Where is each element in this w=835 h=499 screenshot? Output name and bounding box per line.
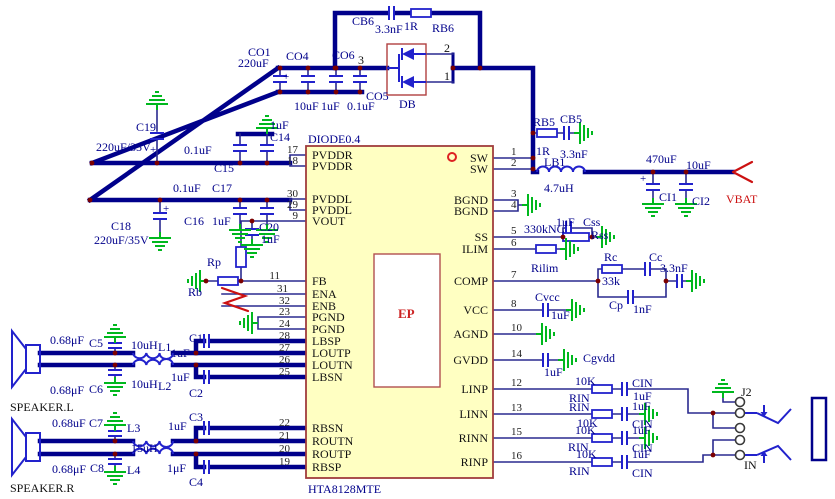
label-rb-ref: Rb xyxy=(188,285,202,299)
label-c18-val: 220uF/35V xyxy=(94,233,149,247)
label-rss-ref: Rss xyxy=(591,228,609,242)
svg-text:31: 31 xyxy=(277,283,288,295)
label-rin13-ref: RIN xyxy=(569,400,590,414)
label-j2-ref: J2 xyxy=(741,385,752,399)
ground-icon xyxy=(536,323,554,345)
label-c3-val: 1uF xyxy=(168,419,187,433)
label-c19-plus: + xyxy=(150,144,156,156)
svg-text:RINN: RINN xyxy=(459,431,489,445)
svg-text:18: 18 xyxy=(287,155,299,167)
ground-icon xyxy=(522,194,540,216)
label-l34-val: 15uH xyxy=(131,441,158,455)
label-c4-val: 1μF xyxy=(167,461,186,475)
audio-jack-j2 xyxy=(736,398,827,464)
svg-text:14: 14 xyxy=(511,348,523,360)
svg-text:15: 15 xyxy=(511,426,523,438)
svg-text:ROUTP: ROUTP xyxy=(312,447,352,461)
label-l4-ref: L4 xyxy=(127,463,140,477)
ground-icon xyxy=(149,232,171,250)
label-rc-val: 33k xyxy=(602,274,620,288)
label-c2-val: 1uF xyxy=(171,370,190,384)
label-rb6-ref: RB6 xyxy=(432,21,454,35)
label-c17-val: 1uF xyxy=(212,214,231,228)
ic-part-number: HTA8128MTE xyxy=(308,482,381,496)
label-cin15-val: 1uF xyxy=(632,423,651,437)
label-c16-ref: C16 xyxy=(184,214,204,228)
svg-text:10: 10 xyxy=(511,322,523,334)
svg-text:SW: SW xyxy=(470,162,489,176)
label-c8-ref: C8 xyxy=(90,461,104,475)
label-l2-ref: L2 xyxy=(158,379,171,393)
label-lb1-ref: LB1 xyxy=(544,155,565,169)
svg-text:20: 20 xyxy=(279,443,291,455)
label-c4-ref: C4 xyxy=(189,475,203,489)
ground-icon xyxy=(229,224,251,242)
label-node3: 3 xyxy=(358,53,364,67)
label-c16-val: 0.1uF xyxy=(173,181,201,195)
label-cp-ref: Cp xyxy=(609,298,623,312)
ground-icon xyxy=(104,466,126,484)
label-cin16-ref: CIN xyxy=(632,466,653,480)
label-cin13-val: 1uF xyxy=(632,399,651,413)
svg-text:16: 16 xyxy=(511,450,523,462)
label-rc-ref: Rc xyxy=(604,250,617,264)
svg-text:9: 9 xyxy=(293,210,299,222)
label-ci1-plus: + xyxy=(640,173,646,185)
svg-text:6: 6 xyxy=(511,237,517,249)
label-db-pin2: 2 xyxy=(444,41,450,55)
svg-text:RBSP: RBSP xyxy=(312,460,342,474)
label-c1-ref: C1 xyxy=(189,331,203,345)
label-c19-val: 220uF/35V xyxy=(96,140,151,154)
svg-text:LBSN: LBSN xyxy=(312,370,343,384)
label-c6-ref: C6 xyxy=(89,382,103,396)
label-cin12-ref: CIN xyxy=(632,376,653,390)
label-c6-val: 0.68μF xyxy=(50,383,84,397)
svg-text:ROUTN: ROUTN xyxy=(312,434,354,448)
label-db-ref: DB xyxy=(399,97,416,111)
label-vbat: VBAT xyxy=(726,192,758,206)
svg-text:28: 28 xyxy=(279,330,291,342)
label-c17-ref: C17 xyxy=(212,181,232,195)
label-comp-cap-val: 3.3nF xyxy=(660,261,688,275)
label-rin16-val: 10K xyxy=(576,447,597,461)
label-cp-val: 1nF xyxy=(633,302,652,316)
label-css-ref: Css xyxy=(583,215,601,229)
svg-text:13: 13 xyxy=(511,402,523,414)
label-c18-plus: + xyxy=(163,203,169,215)
label-cvcc-ref: Cvcc xyxy=(535,290,560,304)
svg-text:ILIM: ILIM xyxy=(462,242,488,256)
label-c5-ref: C5 xyxy=(89,336,103,350)
ground-icon xyxy=(104,325,126,343)
svg-text:27: 27 xyxy=(279,342,291,354)
ground-icon xyxy=(104,413,126,431)
ground-icon xyxy=(686,270,704,292)
label-in: IN xyxy=(744,458,757,472)
label-c2-ref: C2 xyxy=(189,386,203,400)
label-c19-ref: C19 xyxy=(136,120,156,134)
svg-text:12: 12 xyxy=(511,377,522,389)
label-c8-val: 0.68μF xyxy=(52,462,86,476)
label-cgvdd-ref: Cgvdd xyxy=(583,351,615,365)
ground-icon xyxy=(712,380,734,398)
svg-text:AGND: AGND xyxy=(453,327,488,341)
label-speaker-r: SPEAKER.R xyxy=(10,481,74,495)
label-c15-val: 0.1uF xyxy=(184,143,212,157)
ic-top-label: DIODE0.4 xyxy=(308,132,360,146)
label-speaker-l: SPEAKER.L xyxy=(10,400,74,414)
label-c15-ref: C15 xyxy=(214,161,234,175)
svg-text:RINP: RINP xyxy=(461,455,489,469)
label-cb6-val: 3.3nF xyxy=(375,22,403,36)
svg-text:22: 22 xyxy=(279,417,290,429)
vbat-connector-icon xyxy=(733,162,752,182)
ground-icon xyxy=(240,312,258,334)
label-c1-val: 1uF xyxy=(171,346,190,360)
ep-label: EP xyxy=(398,306,415,321)
svg-text:VOUT: VOUT xyxy=(312,214,346,228)
enable-noconnect-mark xyxy=(222,288,248,311)
svg-text:FB: FB xyxy=(312,274,327,288)
label-db-pin1: 1 xyxy=(444,69,450,83)
label-ci1-val: 470uF xyxy=(646,152,677,166)
svg-text:24: 24 xyxy=(279,318,291,330)
label-ci1-ref: CI1 xyxy=(659,190,677,204)
svg-text:LINN: LINN xyxy=(459,407,488,421)
svg-text:LINP: LINP xyxy=(461,382,488,396)
label-ci2-ref: CI2 xyxy=(692,194,710,208)
label-lb1-val: 4.7uH xyxy=(544,181,574,195)
label-co6-val: 1uF xyxy=(321,99,340,113)
dual-diode-db xyxy=(387,44,426,95)
label-rin12-val: 10K xyxy=(575,374,596,388)
svg-text:25: 25 xyxy=(279,366,291,378)
svg-text:GVDD: GVDD xyxy=(453,353,488,367)
label-c3-ref: C3 xyxy=(189,410,203,424)
label-l1-ref: L1 xyxy=(158,340,171,354)
svg-text:19: 19 xyxy=(279,456,291,468)
label-rin15-val: 10K xyxy=(575,423,596,437)
speaker-right-icon xyxy=(12,419,40,475)
label-c14-ref: C14 xyxy=(270,130,290,144)
schematic-canvas: DIODE0.4 HTA8128MTE EP PVDDR PVDDR PVDDL… xyxy=(0,0,835,499)
svg-text:PVDDR: PVDDR xyxy=(312,159,353,173)
label-cb6-ref: CB6 xyxy=(352,14,374,28)
label-cb5-ref: CB5 xyxy=(560,112,582,126)
label-rilim-ref: Rilim xyxy=(531,261,559,275)
label-co5-val: 0.1uF xyxy=(347,99,375,113)
label-co4-ref: CO4 xyxy=(286,49,309,63)
svg-text:VCC: VCC xyxy=(463,303,488,317)
label-rb5-ref: RB5 xyxy=(533,115,555,129)
label-css-val: 1uF xyxy=(556,215,575,229)
svg-text:8: 8 xyxy=(511,298,517,310)
ground-icon xyxy=(146,92,168,110)
label-c5-val: 0.68μF xyxy=(50,333,84,347)
speaker-left-icon xyxy=(12,331,40,387)
label-co1-val: 220uF xyxy=(238,56,269,70)
label-c7-ref: C7 xyxy=(89,416,103,430)
svg-text:RBSN: RBSN xyxy=(312,421,344,435)
svg-text:7: 7 xyxy=(511,269,517,281)
svg-text:11: 11 xyxy=(269,270,280,282)
svg-text:23: 23 xyxy=(279,306,291,318)
label-cin16-val: 1uF xyxy=(632,447,651,461)
svg-text:4: 4 xyxy=(511,199,517,211)
label-l1-val: 10uH xyxy=(131,338,158,352)
label-cvcc-val: 1uF xyxy=(551,308,570,322)
ground-icon xyxy=(104,377,126,395)
label-c18-ref: C18 xyxy=(111,219,131,233)
label-ci2-val: 10uF xyxy=(686,158,711,172)
svg-text:2: 2 xyxy=(511,157,517,169)
label-l3-ref: L3 xyxy=(127,421,140,435)
label-co6-ref: CO6 xyxy=(332,48,355,62)
schematic-page: DIODE0.4 HTA8128MTE EP PVDDR PVDDR PVDDL… xyxy=(0,0,835,499)
svg-text:COMP: COMP xyxy=(454,274,488,288)
label-co1-plus: + xyxy=(283,71,289,83)
label-l2-val: 10uH xyxy=(131,377,158,391)
label-rb6-val: 1R xyxy=(404,19,418,33)
label-c20-val: 1uF xyxy=(261,232,280,246)
label-rin16-ref: RIN xyxy=(569,464,590,478)
svg-text:21: 21 xyxy=(279,430,290,442)
label-rp-ref: Rp xyxy=(207,255,221,269)
svg-text:5: 5 xyxy=(511,225,517,237)
svg-text:26: 26 xyxy=(279,354,291,366)
label-cgvdd-val: 1uF xyxy=(544,365,563,379)
label-co4-val: 10uF xyxy=(294,99,319,113)
svg-text:BGND: BGND xyxy=(454,204,488,218)
label-c7-val: 0.68uF xyxy=(52,416,86,430)
